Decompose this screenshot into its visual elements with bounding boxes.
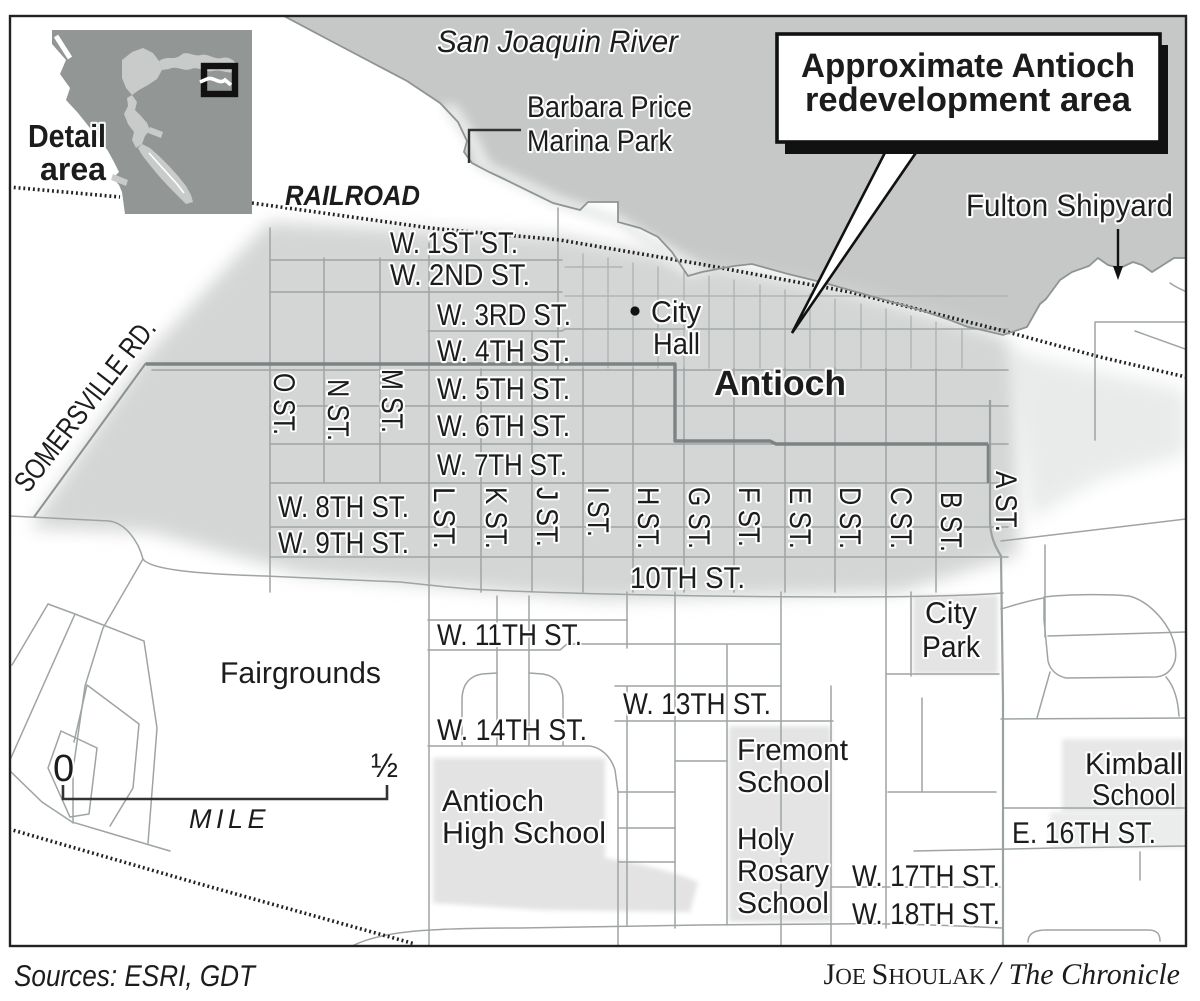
svg-text:C ST.: C ST.: [884, 487, 917, 549]
svg-text:Rosary: Rosary: [737, 855, 829, 888]
svg-text:City: City: [925, 597, 977, 630]
svg-text:School: School: [737, 766, 830, 799]
svg-text:E. 16TH ST.: E. 16TH ST.: [1012, 817, 1156, 850]
svg-text:E ST.: E ST.: [783, 487, 816, 549]
svg-text:City: City: [651, 296, 701, 329]
svg-text:N ST.: N ST.: [321, 379, 354, 441]
svg-text:redevelopment area: redevelopment area: [805, 81, 1132, 119]
svg-text:10TH ST.: 10TH ST.: [630, 562, 745, 595]
svg-text:I ST.: I ST.: [581, 487, 614, 537]
svg-text:W. 11TH ST.: W. 11TH ST.: [437, 619, 582, 652]
svg-text:W. 7TH ST.: W. 7TH ST.: [437, 449, 567, 482]
svg-text:D ST.: D ST.: [833, 487, 866, 549]
svg-text:W. 2ND ST.: W. 2ND ST.: [390, 259, 530, 292]
svg-text:RAILROAD: RAILROAD: [285, 180, 420, 211]
svg-text:W. 8TH ST.: W. 8TH ST.: [278, 491, 409, 524]
svg-text:Sources: ESRI, GDT: Sources: ESRI, GDT: [14, 960, 257, 993]
svg-text:High School: High School: [442, 817, 606, 850]
svg-text:San Joaquin River: San Joaquin River: [437, 24, 680, 59]
svg-text:Antioch: Antioch: [714, 364, 846, 403]
svg-text:0: 0: [53, 748, 74, 790]
svg-text:Hall: Hall: [653, 328, 700, 361]
svg-text:School: School: [1092, 779, 1176, 812]
svg-text:F ST.: F ST.: [732, 487, 765, 547]
svg-text:O ST.: O ST.: [267, 373, 300, 435]
svg-text:L ST.: L ST.: [427, 487, 460, 549]
svg-text:Fairgrounds: Fairgrounds: [220, 657, 381, 690]
svg-text:Kimball: Kimball: [1085, 748, 1183, 781]
svg-text:W. 13TH ST.: W. 13TH ST.: [623, 688, 771, 721]
svg-text:Antioch: Antioch: [442, 785, 544, 818]
svg-text:Approximate Antioch: Approximate Antioch: [801, 47, 1135, 85]
svg-text:Fulton Shipyard: Fulton Shipyard: [966, 188, 1173, 223]
svg-text:W. 3RD ST.: W. 3RD ST.: [437, 299, 571, 332]
svg-text:W. 17TH ST.: W. 17TH ST.: [852, 860, 1000, 893]
svg-text:G ST.: G ST.: [682, 487, 715, 549]
svg-text:M ST.: M ST.: [375, 369, 408, 433]
svg-text:MILE: MILE: [189, 804, 270, 834]
svg-text:J ST.: J ST.: [530, 487, 563, 547]
svg-text:K ST.: K ST.: [479, 487, 512, 549]
svg-text:W. 1ST ST.: W. 1ST ST.: [390, 227, 518, 260]
svg-text:JOE SHOULAK / The Chronicle: JOE SHOULAK / The Chronicle: [824, 956, 1180, 992]
svg-text:W. 14TH ST.: W. 14TH ST.: [437, 714, 587, 747]
svg-text:Barbara Price: Barbara Price: [527, 91, 692, 124]
svg-text:W. 18TH ST.: W. 18TH ST.: [852, 898, 1000, 931]
svg-text:½: ½: [371, 747, 398, 785]
svg-text:Detail: Detail: [28, 118, 106, 154]
svg-text:W. 5TH ST.: W. 5TH ST.: [437, 373, 570, 406]
svg-text:A ST.: A ST.: [989, 471, 1022, 532]
svg-text:Marina Park: Marina Park: [527, 125, 673, 158]
svg-text:W. 9TH ST.: W. 9TH ST.: [278, 527, 409, 560]
svg-text:Fremont: Fremont: [737, 734, 849, 767]
svg-text:B ST.: B ST.: [934, 492, 967, 552]
svg-text:W. 4TH ST.: W. 4TH ST.: [437, 335, 570, 368]
svg-text:H ST.: H ST.: [631, 487, 664, 549]
svg-text:School: School: [737, 887, 829, 920]
svg-text:Park: Park: [922, 631, 981, 664]
svg-text:area: area: [40, 151, 106, 187]
svg-text:W. 6TH ST.: W. 6TH ST.: [437, 410, 570, 443]
svg-text:Holy: Holy: [737, 823, 794, 856]
